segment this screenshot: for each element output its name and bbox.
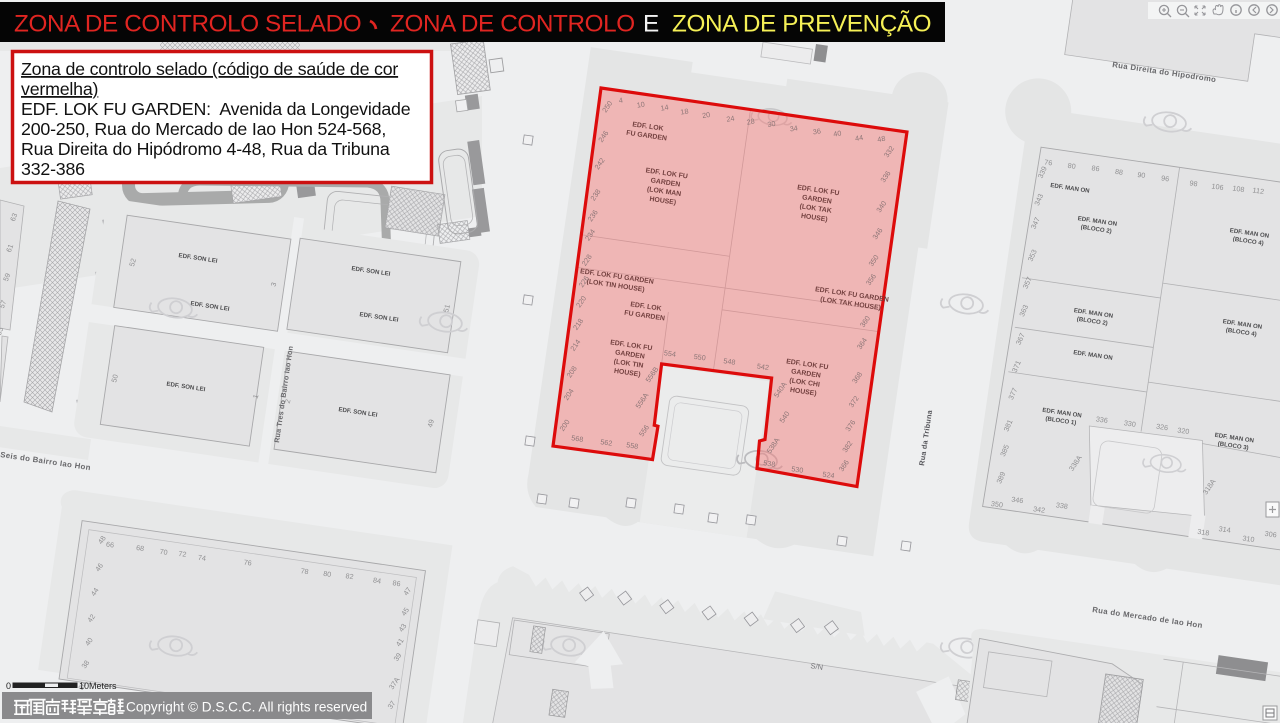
svg-text:20: 20 — [701, 110, 710, 120]
svg-text:108: 108 — [1232, 183, 1245, 194]
svg-text:568: 568 — [571, 433, 584, 444]
svg-text:548: 548 — [723, 356, 736, 367]
svg-text:332-386: 332-386 — [21, 159, 85, 179]
svg-text:106: 106 — [1211, 181, 1224, 192]
svg-text:10: 10 — [636, 100, 645, 110]
svg-text:338: 338 — [1055, 500, 1068, 511]
svg-text:96: 96 — [1161, 173, 1170, 183]
svg-text:86: 86 — [1091, 163, 1100, 173]
svg-text:68: 68 — [136, 543, 145, 553]
svg-text:330: 330 — [1123, 418, 1136, 429]
svg-text:200-250, Rua do Mercado de Iao: 200-250, Rua do Mercado de Iao Hon 524-5… — [21, 119, 386, 139]
svg-text:550: 550 — [693, 352, 706, 363]
svg-text:30: 30 — [767, 119, 776, 129]
svg-text:320: 320 — [1177, 425, 1190, 436]
svg-text:0: 0 — [6, 681, 11, 691]
svg-text:80: 80 — [1067, 161, 1076, 171]
svg-text:76: 76 — [1044, 157, 1053, 167]
svg-text:80: 80 — [323, 569, 332, 579]
svg-text:84: 84 — [372, 576, 381, 586]
svg-text:70: 70 — [159, 547, 168, 557]
svg-text:336: 336 — [1095, 414, 1108, 425]
svg-text:538: 538 — [763, 458, 776, 469]
svg-text:86: 86 — [392, 578, 401, 588]
svg-text:34: 34 — [789, 123, 798, 133]
svg-text:558: 558 — [626, 440, 639, 451]
svg-text:90: 90 — [1137, 170, 1146, 180]
svg-text:10Meters: 10Meters — [79, 681, 117, 691]
svg-text:24: 24 — [726, 114, 735, 124]
svg-text:76: 76 — [243, 558, 252, 568]
svg-text:318: 318 — [1197, 527, 1210, 538]
svg-text:S/N: S/N — [810, 661, 824, 672]
svg-text:Rua Direita do Hipódromo 4-48,: Rua Direita do Hipódromo 4-48, Rua da Tr… — [21, 139, 390, 159]
svg-text:66: 66 — [105, 539, 114, 549]
svg-text:EDF. LOK FU GARDEN: Avenida d: EDF. LOK FU GARDEN: Avenida da Longevida… — [21, 99, 411, 119]
svg-text:14: 14 — [660, 102, 669, 112]
svg-text:74: 74 — [197, 553, 206, 563]
svg-text:326: 326 — [1156, 422, 1169, 433]
svg-text:530: 530 — [791, 464, 804, 475]
svg-text:342: 342 — [1033, 504, 1046, 515]
svg-text:88: 88 — [1114, 167, 1123, 177]
svg-text:72: 72 — [178, 549, 187, 559]
svg-text:78: 78 — [300, 566, 309, 576]
svg-text:Zona de controlo selado (códig: Zona de controlo selado (código de saúde… — [21, 59, 398, 79]
svg-text:18: 18 — [680, 106, 689, 116]
svg-text:542: 542 — [756, 361, 769, 372]
svg-text:306: 306 — [1264, 529, 1277, 540]
svg-text:98: 98 — [1189, 178, 1198, 188]
svg-text:554: 554 — [663, 348, 676, 359]
svg-text:310: 310 — [1242, 533, 1255, 544]
svg-text:562: 562 — [600, 437, 613, 448]
svg-text:524: 524 — [822, 470, 835, 481]
svg-text:40: 40 — [833, 128, 842, 138]
svg-text:112: 112 — [1252, 185, 1265, 196]
svg-text:350: 350 — [990, 499, 1003, 510]
svg-text:82: 82 — [345, 571, 354, 581]
svg-text:vermelha): vermelha) — [21, 79, 98, 99]
svg-text:44: 44 — [854, 133, 863, 143]
svg-text:ZONA DE CONTROLO SELADOZONA DE: ZONA DE CONTROLO SELADOZONA DE CONTROLOE… — [14, 11, 931, 38]
svg-text:346: 346 — [1011, 495, 1024, 506]
svg-text:28: 28 — [746, 116, 755, 126]
svg-text:314: 314 — [1218, 524, 1231, 535]
svg-text:Copyright © D.S.C.C. All right: Copyright © D.S.C.C. All rights reserved — [126, 700, 367, 715]
svg-text:36: 36 — [812, 126, 821, 136]
svg-text:48: 48 — [877, 134, 886, 144]
